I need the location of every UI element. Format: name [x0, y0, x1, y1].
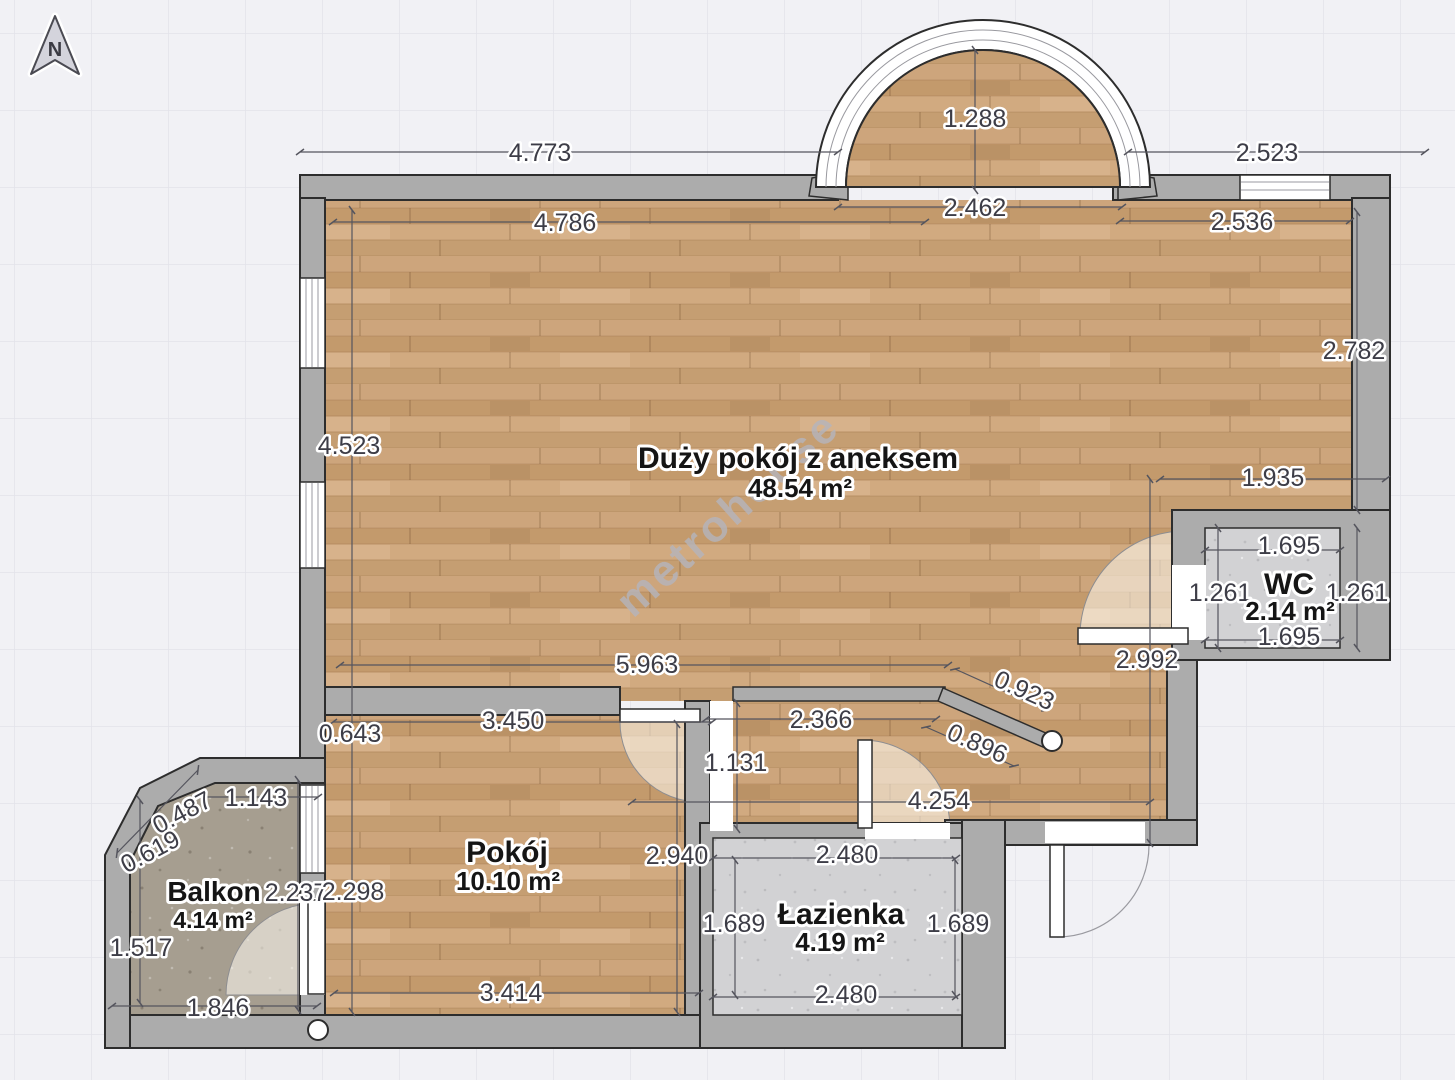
- dim-hall-h: 2.992: [1116, 646, 1179, 674]
- dim-living-top-w: 4.786: [534, 209, 597, 237]
- wall-top-left: [300, 175, 838, 200]
- dim-top-right-ext: 2.523: [1236, 139, 1299, 167]
- balcony-door-leaf: [308, 900, 325, 994]
- dim-living-bottom: 5.963: [616, 651, 679, 679]
- dim-room-offset: 0.643: [319, 720, 382, 748]
- wc-door-leaf: [1078, 628, 1188, 644]
- wall-hall-right: [1167, 660, 1197, 845]
- entrance-door-gap: [1045, 822, 1145, 843]
- dim-right-wall: 2.782: [1323, 337, 1386, 365]
- dim-wc-left: 1.261: [1189, 579, 1252, 607]
- floor-plan-canvas: N: [0, 0, 1455, 1080]
- floor-plan-page: N: [0, 0, 1455, 1080]
- dim-top-left-ext: 4.773: [509, 139, 572, 167]
- dim-wc-top: 1.695: [1258, 532, 1321, 560]
- balcony-window: [300, 785, 325, 873]
- room-name: Pokój: [466, 836, 548, 869]
- dim-arch-depth: 1.288: [944, 105, 1007, 133]
- dim-balc-top: 1.143: [225, 784, 288, 812]
- entrance-door-leaf: [1050, 845, 1064, 937]
- column-marker-balcony: [308, 1020, 328, 1040]
- living-room-area: 48.54 m²: [748, 473, 852, 503]
- dim-balc-bottom: 1.846: [187, 994, 250, 1022]
- dim-room-left-h: 2.298: [322, 878, 385, 906]
- dim-balc-left: 1.517: [110, 934, 173, 962]
- top-window: [1240, 175, 1330, 200]
- compass-label: N: [48, 39, 62, 61]
- column-marker-hall: [1042, 731, 1062, 751]
- living-room-name: Duży pokój z aneksem: [638, 442, 958, 475]
- wall-room-top: [325, 687, 620, 715]
- dim-corridor-w: 2.366: [790, 706, 853, 734]
- dim-arch-width: 2.462: [944, 194, 1007, 222]
- bathroom-area: 4.19 m²: [795, 927, 885, 957]
- wc-area: 2.14 m²: [1245, 596, 1335, 626]
- dim-left-wall: 4.523: [318, 432, 381, 460]
- dim-living-top-e: 2.536: [1211, 208, 1274, 236]
- left-window-lower: [300, 482, 325, 568]
- balcony-area: 4.14 m²: [173, 907, 253, 933]
- dim-corridor-h: 1.131: [705, 749, 768, 777]
- dim-wc-bottom: 1.695: [1258, 623, 1321, 651]
- dim-bath-bottom: 2.480: [815, 981, 878, 1009]
- dim-wc-offset: 1.935: [1242, 464, 1305, 492]
- dim-room-h: 2.940: [646, 842, 709, 870]
- dim-balc-h: 2.237: [265, 879, 328, 907]
- bathroom-door-leaf: [858, 740, 872, 828]
- balcony-name: Balkon: [167, 876, 260, 907]
- dim-bath-right: 1.689: [927, 910, 990, 938]
- dim-bath-left: 1.689: [703, 910, 766, 938]
- wall-living-bottom: [733, 687, 945, 701]
- dim-room-bottom: 3.414: [480, 979, 543, 1007]
- dim-room-top: 3.450: [482, 707, 545, 735]
- dim-hall-w: 4.254: [908, 787, 971, 815]
- left-window-upper: [300, 278, 325, 368]
- room-door-leaf: [620, 709, 700, 722]
- room-area: 10.10 m²: [456, 866, 560, 896]
- dim-bath-top: 2.480: [816, 841, 879, 869]
- bathroom-door-gap: [865, 823, 950, 839]
- dim-wc-right: 1.261: [1326, 579, 1389, 607]
